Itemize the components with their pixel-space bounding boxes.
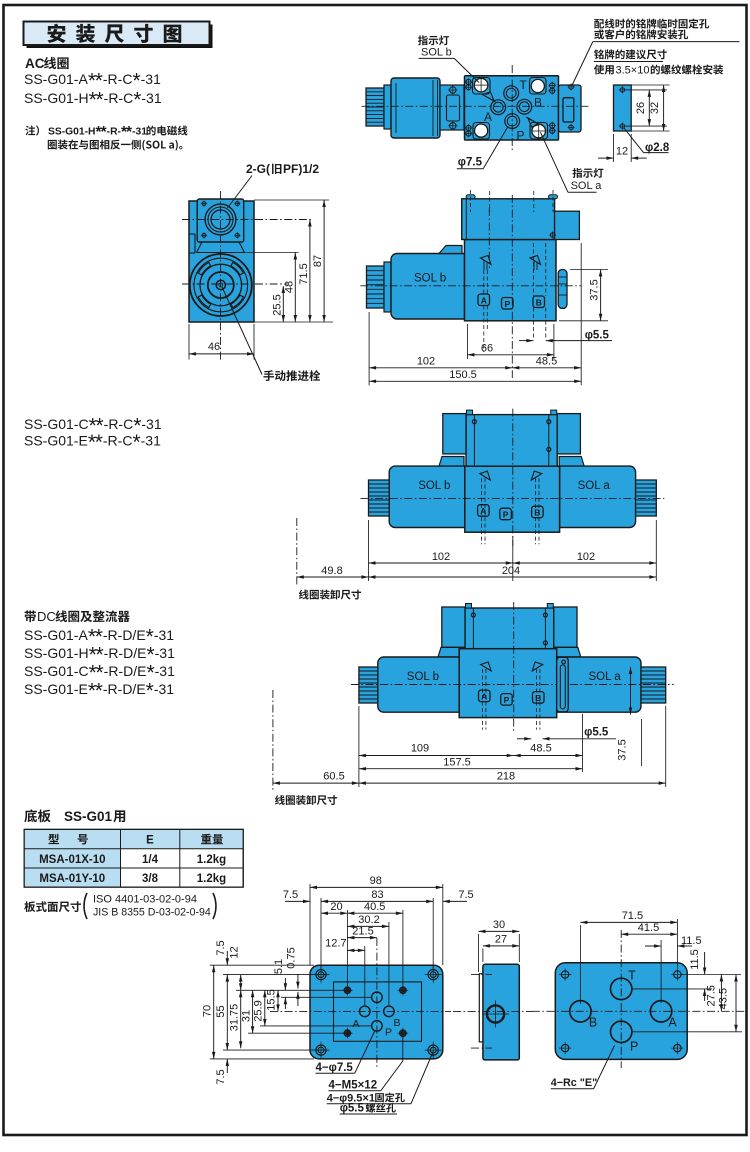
svg-text:P: P (385, 1027, 392, 1039)
svg-text:49.8: 49.8 (321, 565, 342, 577)
svg-text:4−φ7.5: 4−φ7.5 (316, 1062, 354, 1074)
svg-text:5.1: 5.1 (273, 959, 285, 974)
svg-text:60.5: 60.5 (323, 771, 344, 783)
svg-text:87: 87 (312, 255, 324, 267)
svg-text:DC: DC (37, 609, 56, 624)
svg-text:66: 66 (481, 343, 493, 355)
svg-text:SOL b: SOL b (407, 671, 439, 683)
svg-text:A: A (668, 1016, 677, 1030)
svg-text:φ5.5: φ5.5 (584, 727, 609, 739)
svg-text:φ5.5: φ5.5 (340, 1103, 365, 1115)
svg-text:B: B (393, 1017, 400, 1029)
svg-text:109: 109 (411, 743, 429, 755)
svg-text:12: 12 (616, 145, 628, 157)
svg-text:7.5: 7.5 (458, 889, 473, 901)
svg-text:27.5: 27.5 (705, 985, 717, 1006)
svg-text:JIS B 8355 D-03-02-0-94: JIS B 8355 D-03-02-0-94 (93, 907, 211, 919)
svg-text:1/4: 1/4 (142, 854, 159, 866)
svg-text:P: P (517, 129, 525, 143)
svg-text:P: P (503, 510, 509, 520)
svg-text:30: 30 (493, 919, 505, 931)
svg-text:SOL a: SOL a (589, 671, 622, 683)
svg-text:102: 102 (432, 551, 450, 563)
svg-text:A: A (484, 110, 492, 124)
svg-text:26: 26 (635, 102, 647, 114)
svg-text:71.5: 71.5 (298, 263, 310, 284)
svg-text:71.5: 71.5 (622, 910, 643, 922)
svg-text:P: P (630, 1040, 638, 1054)
svg-text:4−M5×12: 4−M5×12 (329, 1079, 378, 1091)
svg-text:E: E (146, 835, 154, 847)
svg-text:25.9: 25.9 (253, 1000, 265, 1021)
svg-text:SOL b: SOL b (418, 480, 450, 492)
svg-text:83: 83 (371, 889, 383, 901)
svg-text:157.5: 157.5 (443, 756, 471, 768)
svg-text:P: P (504, 695, 510, 705)
svg-text:98: 98 (370, 875, 382, 887)
svg-text:1.2kg: 1.2kg (197, 873, 226, 885)
svg-text:15.5: 15.5 (266, 989, 278, 1010)
svg-text:B: B (534, 96, 542, 110)
svg-text:φ7.5: φ7.5 (458, 157, 483, 169)
svg-text:SOL a: SOL a (571, 180, 603, 192)
svg-text:A: A (481, 295, 487, 305)
svg-text:204: 204 (502, 565, 520, 577)
svg-text:φ2.8: φ2.8 (645, 142, 670, 154)
svg-text:55: 55 (215, 1005, 227, 1017)
svg-text:φ5.5: φ5.5 (585, 330, 610, 342)
svg-text:3.5×10: 3.5×10 (616, 65, 650, 77)
svg-text:1.2kg: 1.2kg (197, 854, 226, 866)
svg-text:SOL b: SOL b (414, 273, 446, 285)
svg-text:A: A (480, 506, 486, 516)
svg-text:12.7: 12.7 (325, 938, 346, 950)
svg-text:7.5: 7.5 (215, 940, 227, 955)
svg-text:102: 102 (577, 551, 595, 563)
svg-text:43.5: 43.5 (718, 988, 730, 1009)
svg-text:48.5: 48.5 (536, 355, 557, 367)
svg-text:11.5: 11.5 (681, 935, 702, 947)
svg-text:31: 31 (240, 1010, 252, 1022)
svg-text:B: B (535, 693, 541, 703)
svg-text:37.5: 37.5 (588, 279, 600, 300)
svg-text:P: P (504, 299, 510, 309)
svg-text:30.2: 30.2 (358, 914, 379, 926)
svg-text:2-G(: 2-G( (246, 162, 270, 176)
svg-text:12: 12 (228, 946, 240, 958)
svg-text:7.5: 7.5 (215, 1069, 227, 1084)
svg-text:25.5: 25.5 (271, 294, 283, 315)
svg-text:218: 218 (497, 771, 515, 783)
svg-text:3/8: 3/8 (142, 873, 159, 885)
svg-text:11.5: 11.5 (689, 949, 701, 970)
svg-text:102: 102 (417, 355, 435, 367)
svg-text:48.5: 48.5 (530, 743, 551, 755)
svg-text:SOL a: SOL a (578, 480, 611, 492)
svg-text:T: T (628, 969, 636, 983)
svg-text:MSA-01Y-10: MSA-01Y-10 (39, 873, 105, 885)
svg-text:SS-G01: SS-G01 (64, 809, 113, 824)
svg-text:A: A (481, 691, 487, 701)
svg-text:48: 48 (283, 281, 295, 293)
svg-text:0.75: 0.75 (286, 947, 298, 968)
svg-text:AC: AC (25, 56, 45, 71)
svg-text:37.5: 37.5 (617, 739, 629, 760)
svg-text:B: B (534, 508, 540, 518)
svg-text:ISO 4401-03-02-0-94: ISO 4401-03-02-0-94 (93, 894, 197, 906)
svg-text:32: 32 (649, 102, 661, 114)
svg-text:20: 20 (330, 901, 342, 913)
svg-text:B: B (589, 1016, 597, 1030)
svg-text:SOL b: SOL b (421, 46, 452, 58)
svg-text:PF)1/2: PF)1/2 (283, 162, 319, 176)
svg-text:4−Rc "E": 4−Rc "E" (551, 1077, 598, 1089)
svg-text:A: A (352, 1018, 359, 1030)
svg-text:MSA-01X-10: MSA-01X-10 (39, 854, 105, 866)
svg-text:150.5: 150.5 (449, 369, 477, 381)
svg-text:7.5: 7.5 (283, 889, 298, 901)
svg-text:46: 46 (208, 341, 220, 353)
svg-text:70: 70 (201, 1005, 213, 1017)
svg-text:T: T (520, 78, 528, 92)
svg-text:27: 27 (495, 934, 507, 946)
svg-text:21.5: 21.5 (352, 925, 373, 937)
svg-text:41.5: 41.5 (638, 922, 659, 934)
svg-text:40.5: 40.5 (364, 901, 385, 913)
svg-text:31.75: 31.75 (228, 1004, 240, 1032)
svg-text:B: B (536, 297, 542, 307)
